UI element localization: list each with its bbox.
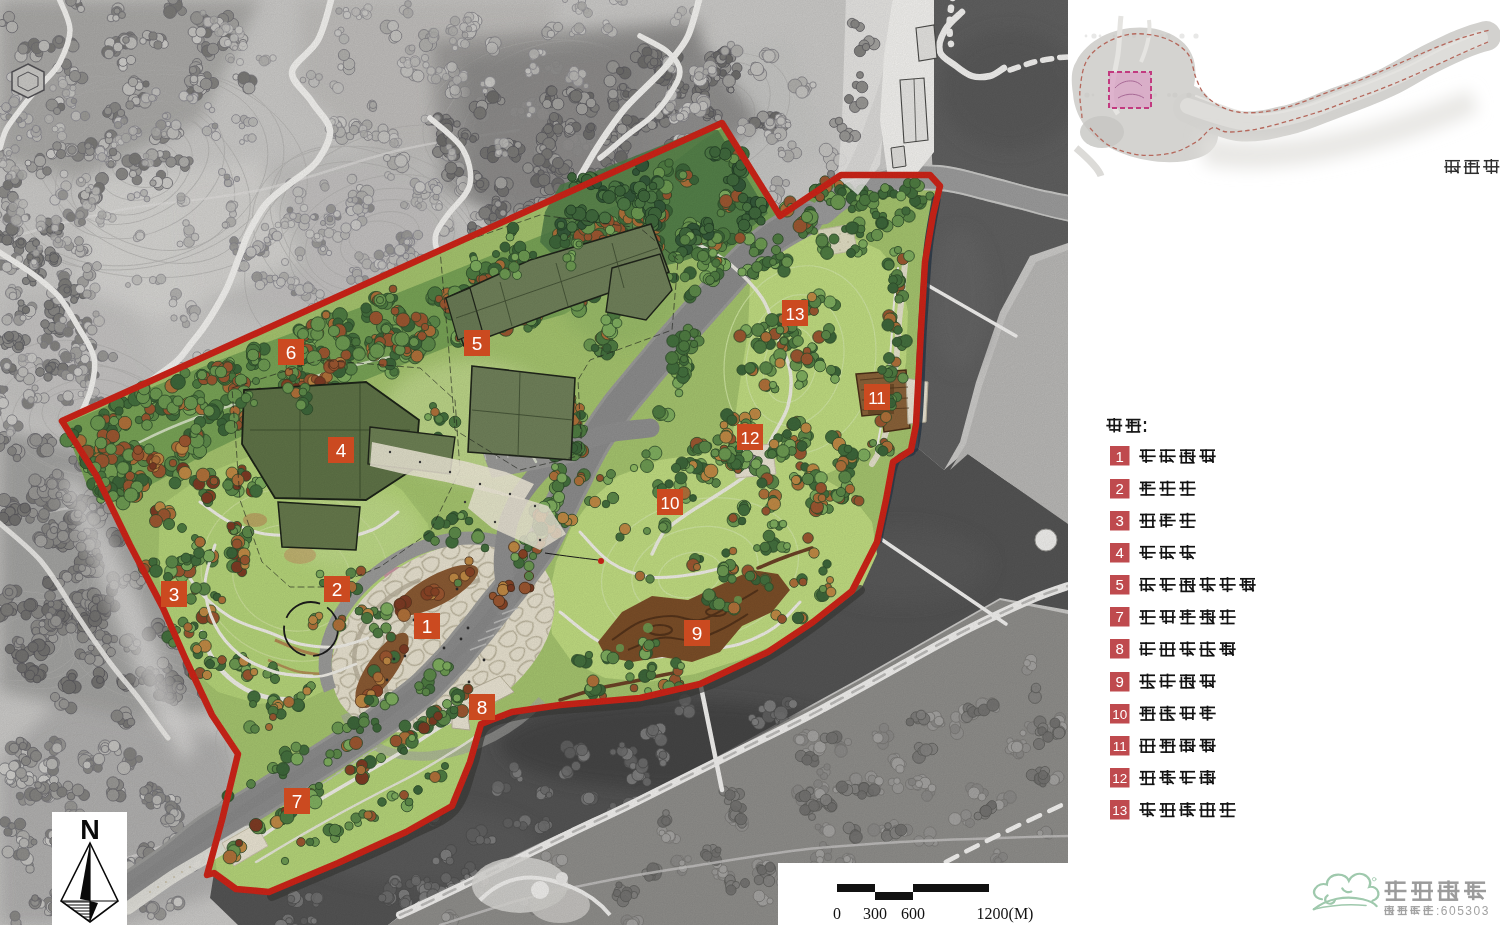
svg-text:11: 11 [868,389,886,408]
svg-text:3: 3 [1116,512,1124,529]
svg-text:2: 2 [332,579,343,600]
svg-text::605303: :605303 [1436,904,1490,918]
svg-text:0: 0 [833,905,841,922]
svg-text:600: 600 [901,905,925,922]
svg-text:4: 4 [1116,544,1124,561]
svg-text:12: 12 [741,429,760,448]
svg-text:13: 13 [786,305,805,324]
svg-text:6: 6 [286,342,297,363]
svg-text:5: 5 [472,333,483,354]
svg-text:10: 10 [1112,707,1127,722]
svg-text:300: 300 [863,905,887,922]
svg-text:12: 12 [1112,771,1127,786]
svg-text:8: 8 [477,697,488,718]
svg-text:5: 5 [1116,576,1124,593]
svg-text:1: 1 [422,616,433,637]
svg-text:1200(M): 1200(M) [977,905,1034,923]
svg-text:9: 9 [1116,673,1124,690]
svg-text:11: 11 [1113,739,1127,754]
svg-text:8: 8 [1116,640,1124,657]
svg-text:7: 7 [292,791,303,812]
svg-text:13: 13 [1112,803,1127,818]
svg-text:2: 2 [1116,480,1124,497]
svg-text:N: N [80,815,100,845]
svg-text:9: 9 [692,623,703,644]
svg-text:1: 1 [1116,448,1124,465]
svg-text:7: 7 [1116,608,1124,625]
svg-text:4: 4 [336,440,347,461]
svg-text:10: 10 [661,494,680,513]
svg-text:3: 3 [169,584,180,605]
